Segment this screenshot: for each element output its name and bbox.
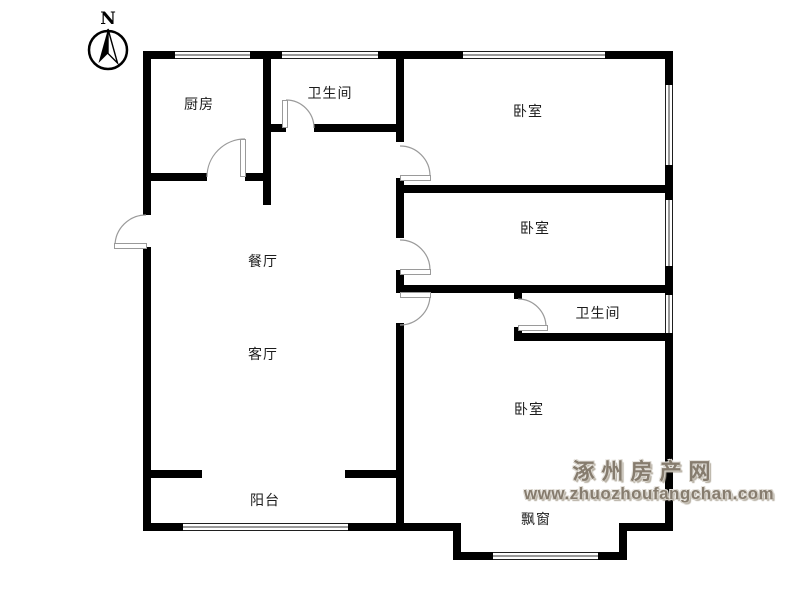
room-label-bathroom-1: 卫生间 xyxy=(308,83,353,103)
window-bathroom-2-right xyxy=(665,295,673,333)
window-bedroom-1-right xyxy=(665,85,673,165)
bedroom-2-door-leaf xyxy=(400,269,431,275)
bathroom-1-door-leaf xyxy=(282,100,288,128)
room-label-bedroom-2: 卧室 xyxy=(520,218,550,238)
floorplan-canvas: N 厨房 卫生间 卧室 卧室 卫生间 卧室 餐厅 客厅 阳台 飘窗 涿州房产网 … xyxy=(0,0,800,600)
north-label: N xyxy=(100,9,116,29)
wall xyxy=(314,124,404,132)
wall xyxy=(250,51,282,59)
wall xyxy=(665,51,673,85)
wall xyxy=(396,285,673,293)
window-bathroom-1 xyxy=(282,51,378,59)
wall xyxy=(263,59,271,205)
wall xyxy=(396,323,404,531)
window-bedroom-1-top xyxy=(463,51,605,59)
room-label-balcony: 阳台 xyxy=(250,490,280,510)
bedroom-2-door-arc xyxy=(400,240,430,270)
wall xyxy=(345,470,404,478)
wall xyxy=(514,333,673,341)
wall xyxy=(143,51,151,215)
wall xyxy=(453,552,493,560)
entrance-door-arc xyxy=(115,215,146,246)
wall xyxy=(143,523,183,531)
compass-icon xyxy=(89,29,127,69)
entrance-door-leaf xyxy=(114,243,147,249)
bedroom-1-door-leaf xyxy=(400,175,431,181)
bedroom-3-door-leaf xyxy=(400,292,431,298)
room-label-kitchen: 厨房 xyxy=(184,94,214,114)
bathroom-2-door-arc xyxy=(518,299,546,327)
window-bay xyxy=(493,552,598,560)
bathroom-1-door-arc xyxy=(286,100,314,128)
wall xyxy=(514,293,522,299)
wall xyxy=(143,247,151,531)
room-label-bedroom-3: 卧室 xyxy=(514,399,544,419)
room-label-bedroom-1: 卧室 xyxy=(513,101,543,121)
bedroom-1-door-arc xyxy=(400,146,430,176)
room-label-dining: 餐厅 xyxy=(248,251,278,271)
kitchen-door-leaf xyxy=(240,139,246,177)
wall xyxy=(627,523,673,531)
room-label-living: 客厅 xyxy=(248,344,278,364)
watermark-site-url: www.zhuozhoufangchan.com xyxy=(524,484,774,504)
window-kitchen xyxy=(175,51,250,59)
wall xyxy=(378,51,463,59)
watermark-site-name: 涿州房产网 xyxy=(572,454,717,486)
wall xyxy=(396,51,404,142)
room-label-bay-window: 飘窗 xyxy=(521,509,551,529)
window-balcony xyxy=(183,523,348,531)
wall xyxy=(665,266,673,295)
bedroom-3-door-arc xyxy=(400,295,430,325)
wall xyxy=(665,165,673,200)
wall xyxy=(143,470,202,478)
room-label-bathroom-2: 卫生间 xyxy=(576,303,621,323)
wall xyxy=(598,552,627,560)
wall xyxy=(348,523,453,531)
wall xyxy=(151,173,207,181)
wall xyxy=(396,185,673,193)
bathroom-2-door-leaf xyxy=(518,325,548,331)
wall xyxy=(605,51,673,59)
window-bedroom-2-right xyxy=(665,200,673,266)
